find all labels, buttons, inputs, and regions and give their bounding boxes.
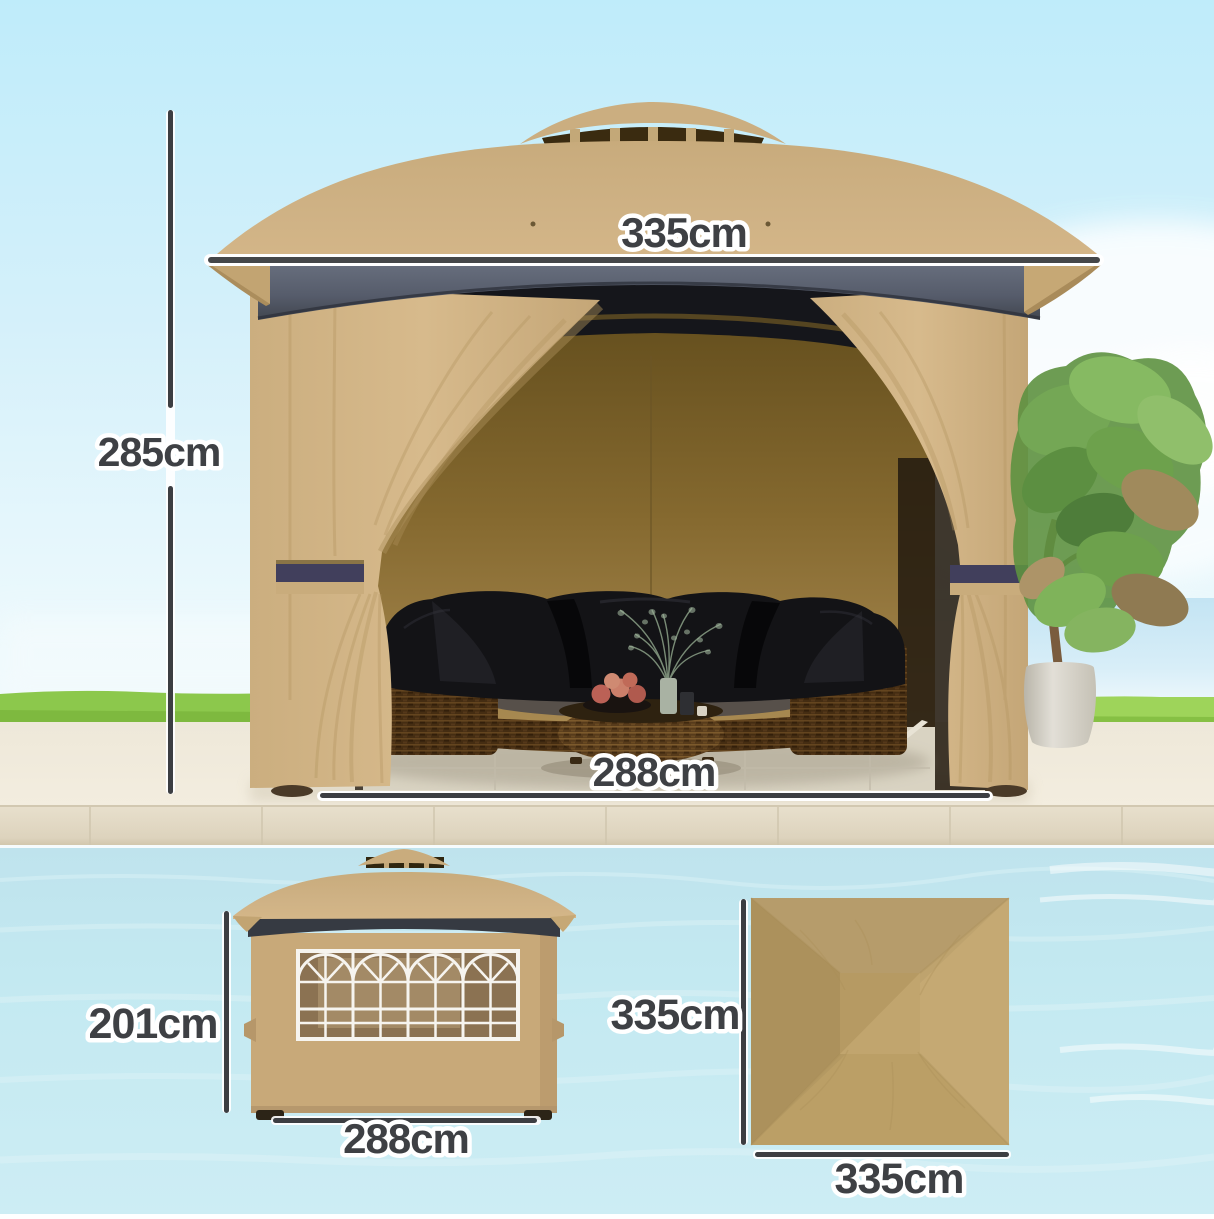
svg-text:335cm: 335cm: [621, 209, 747, 256]
svg-text:288cm: 288cm: [343, 1115, 469, 1162]
svg-text:201cm: 201cm: [89, 1000, 218, 1048]
svg-text:285cm: 285cm: [98, 429, 221, 475]
svg-text:288cm: 288cm: [593, 749, 716, 795]
svg-text:335cm: 335cm: [835, 1155, 964, 1203]
svg-text:335cm: 335cm: [611, 991, 740, 1039]
